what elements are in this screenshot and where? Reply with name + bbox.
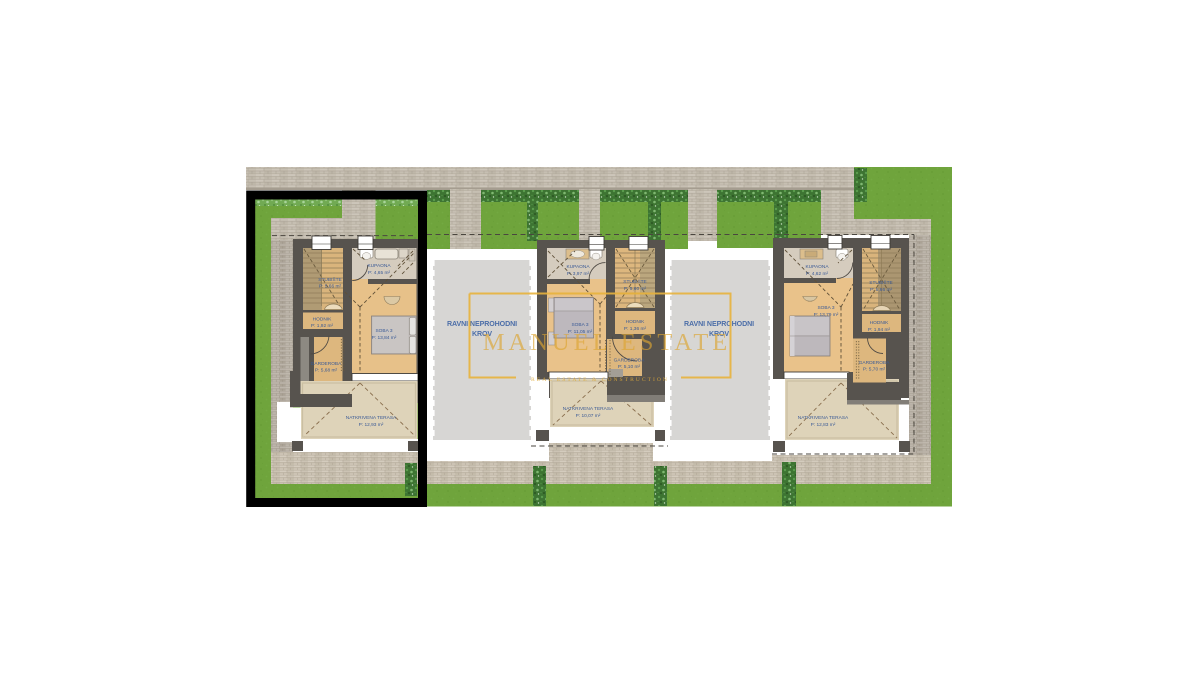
svg-text:P: 4,65 m²: P: 4,65 m²	[368, 270, 391, 276]
svg-text:GARDEROBA: GARDEROBA	[859, 360, 890, 366]
svg-text:KUPAONA: KUPAONA	[566, 264, 590, 270]
svg-text:P: 5,70 m²: P: 5,70 m²	[863, 367, 886, 373]
svg-text:KUPAONA: KUPAONA	[367, 263, 391, 269]
svg-text:STUBIŠTE: STUBIŠTE	[869, 279, 892, 286]
svg-text:STUBIŠTE: STUBIŠTE	[623, 278, 646, 285]
svg-text:SOBA 3: SOBA 3	[375, 328, 392, 334]
svg-text:P: 13,79 m²: P: 13,79 m²	[814, 312, 839, 318]
svg-text:P: 4,62 m²: P: 4,62 m²	[806, 271, 829, 277]
svg-text:P: 13,84 m²: P: 13,84 m²	[372, 335, 397, 341]
svg-text:NATKRIVENA TERASA: NATKRIVENA TERASA	[346, 415, 397, 421]
svg-text:SOBA 3: SOBA 3	[571, 322, 588, 328]
svg-text:NATKRIVENA TERASA: NATKRIVENA TERASA	[798, 415, 849, 421]
svg-text:KUPAONA: KUPAONA	[805, 264, 829, 270]
svg-text:P: 5,68 m²: P: 5,68 m²	[315, 368, 338, 374]
svg-text:P: 5,66 m²: P: 5,66 m²	[870, 287, 893, 293]
svg-text:P: 5,66 m²: P: 5,66 m²	[319, 284, 342, 290]
svg-text:RAVNI NEPROHODNI: RAVNI NEPROHODNI	[684, 320, 754, 328]
svg-text:SOBA 3: SOBA 3	[817, 305, 834, 311]
svg-text:P: 5,10 m²: P: 5,10 m²	[618, 364, 641, 370]
svg-text:P: 1,92 m²: P: 1,92 m²	[311, 323, 334, 329]
svg-text:HODNIK: HODNIK	[870, 320, 889, 326]
svg-text:P: 3,97 m²: P: 3,97 m²	[567, 271, 590, 277]
svg-text:NATKRIVENA TERASA: NATKRIVENA TERASA	[563, 406, 614, 412]
svg-text:HODNIK: HODNIK	[626, 319, 645, 325]
svg-text:P: 10,07 m²: P: 10,07 m²	[576, 413, 601, 419]
svg-text:GARDEROBA: GARDEROBA	[311, 361, 342, 367]
svg-text:P: 1,94 m²: P: 1,94 m²	[868, 327, 891, 333]
svg-text:REAL ESTATE & CONSTRUCTION: REAL ESTATE & CONSTRUCTION	[531, 377, 669, 383]
svg-text:P: 12,93 m²: P: 12,93 m²	[359, 422, 384, 428]
svg-text:STUBIŠTE: STUBIŠTE	[318, 276, 341, 283]
svg-text:RAVNI NEPROHODNI: RAVNI NEPROHODNI	[447, 320, 517, 328]
svg-text:GARDEROBA: GARDEROBA	[614, 358, 645, 364]
svg-text:HODNIK: HODNIK	[313, 317, 332, 323]
svg-text:MANUEL ESTATE: MANUEL ESTATE	[483, 329, 732, 356]
svg-text:P: 12,83 m²: P: 12,83 m²	[811, 422, 836, 428]
svg-text:P: 5,60 m²: P: 5,60 m²	[624, 286, 647, 292]
